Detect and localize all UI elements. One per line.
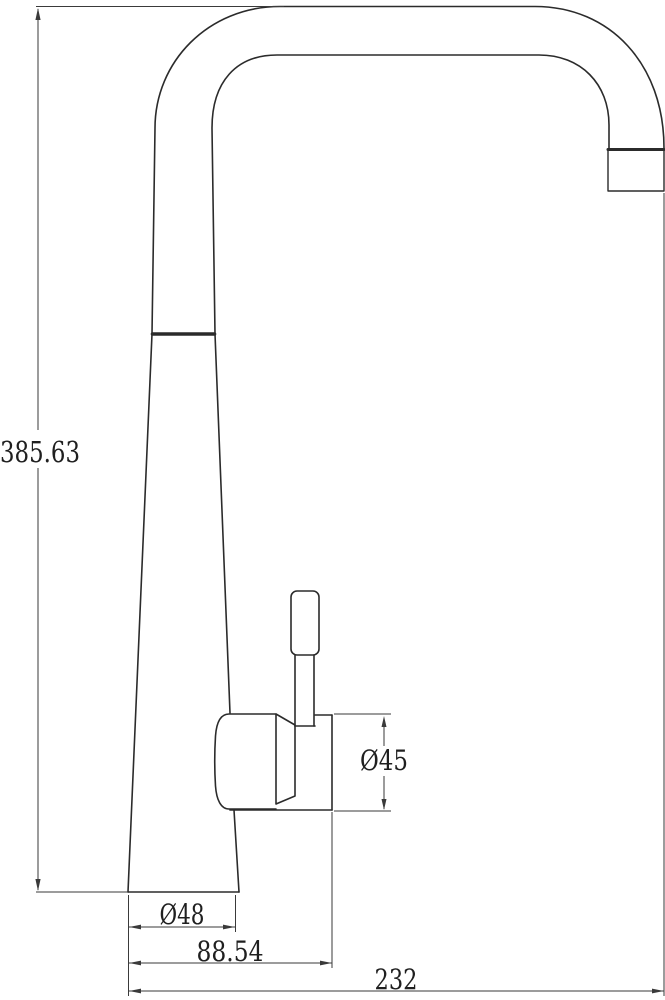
arrowhead-up bbox=[382, 716, 387, 727]
valve-housing-block bbox=[230, 715, 332, 810]
arrowhead-up bbox=[35, 8, 40, 20]
dimension-labels: 385.63 Ø45 Ø48 88.54 232 bbox=[0, 435, 418, 996]
arrowhead-right bbox=[652, 989, 664, 994]
technical-drawing: 385.63 Ø45 Ø48 88.54 232 bbox=[0, 0, 665, 1000]
dimension-overall-reach bbox=[129, 193, 664, 996]
arrowhead-left bbox=[129, 961, 141, 966]
handle-knob bbox=[291, 591, 319, 655]
valve-housing-cap bbox=[215, 714, 276, 809]
aerator-tip bbox=[608, 149, 664, 191]
label-base-span: 88.54 bbox=[197, 935, 264, 968]
label-overall-height: 385.63 bbox=[0, 435, 80, 469]
arrowhead-left bbox=[129, 925, 141, 930]
spout-inner-edge bbox=[212, 55, 609, 713]
label-base-diameter: Ø48 bbox=[160, 898, 205, 931]
arrowhead-right bbox=[320, 961, 332, 966]
arrowhead-right bbox=[223, 925, 235, 930]
body-right-edge-lower bbox=[234, 810, 239, 892]
arrowhead-down bbox=[35, 879, 40, 891]
lever-base-disc bbox=[276, 714, 295, 804]
label-overall-reach: 232 bbox=[375, 963, 418, 996]
label-handle-diameter: Ø45 bbox=[360, 744, 408, 777]
handle-stem bbox=[295, 655, 314, 726]
arrowhead-down bbox=[382, 799, 387, 810]
arrowhead-left bbox=[129, 989, 141, 994]
drawing-sheet: 385.63 Ø45 Ø48 88.54 232 bbox=[0, 0, 665, 1000]
